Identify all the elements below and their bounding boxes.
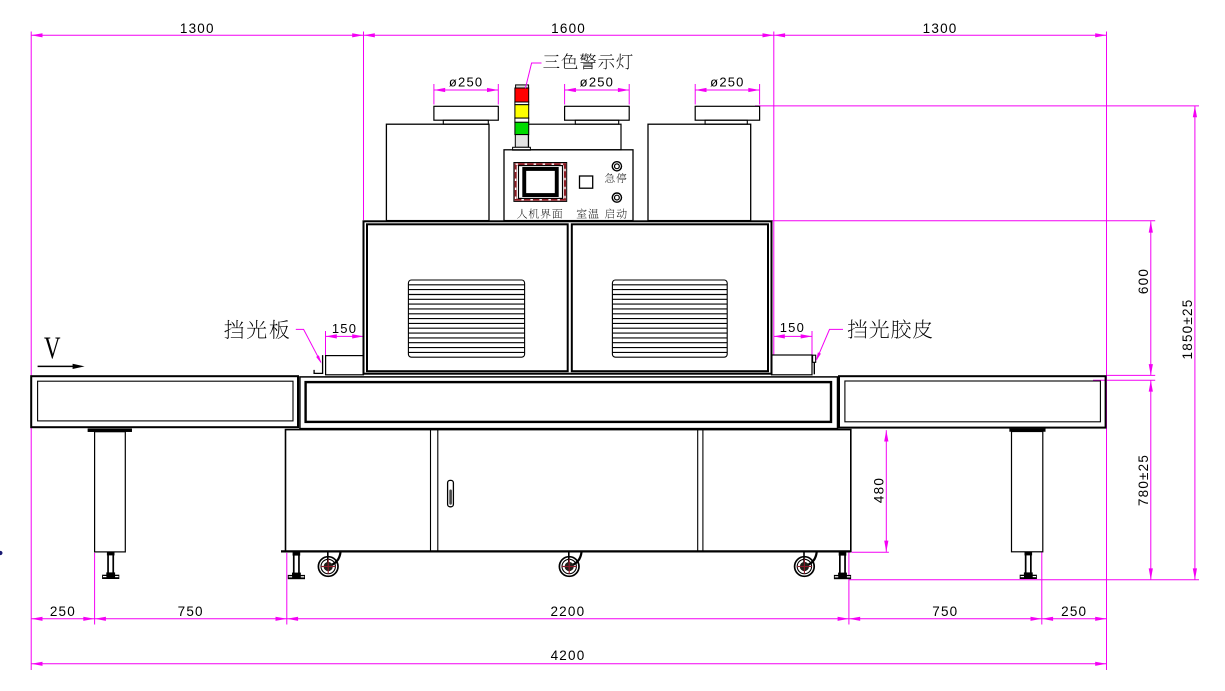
svg-text:ø250: ø250	[449, 75, 483, 90]
svg-text:ø250: ø250	[580, 75, 614, 90]
svg-text:480: 480	[871, 477, 886, 503]
svg-text:1850±25: 1850±25	[1180, 299, 1195, 360]
svg-text:4200: 4200	[551, 648, 586, 663]
svg-text:780±25: 780±25	[1136, 454, 1151, 506]
svg-text:150: 150	[780, 320, 805, 335]
svg-text:V: V	[44, 330, 61, 366]
svg-text:2200: 2200	[550, 604, 585, 619]
svg-text:1300: 1300	[923, 21, 958, 36]
svg-text:1300: 1300	[180, 21, 215, 36]
svg-text:ø250: ø250	[710, 75, 744, 90]
svg-text:1600: 1600	[551, 21, 586, 36]
svg-text:250: 250	[50, 604, 76, 619]
svg-text:250: 250	[1061, 604, 1087, 619]
svg-text:750: 750	[932, 604, 958, 619]
svg-text:750: 750	[178, 604, 204, 619]
svg-text:150: 150	[332, 321, 357, 336]
svg-text:600: 600	[1136, 268, 1151, 294]
